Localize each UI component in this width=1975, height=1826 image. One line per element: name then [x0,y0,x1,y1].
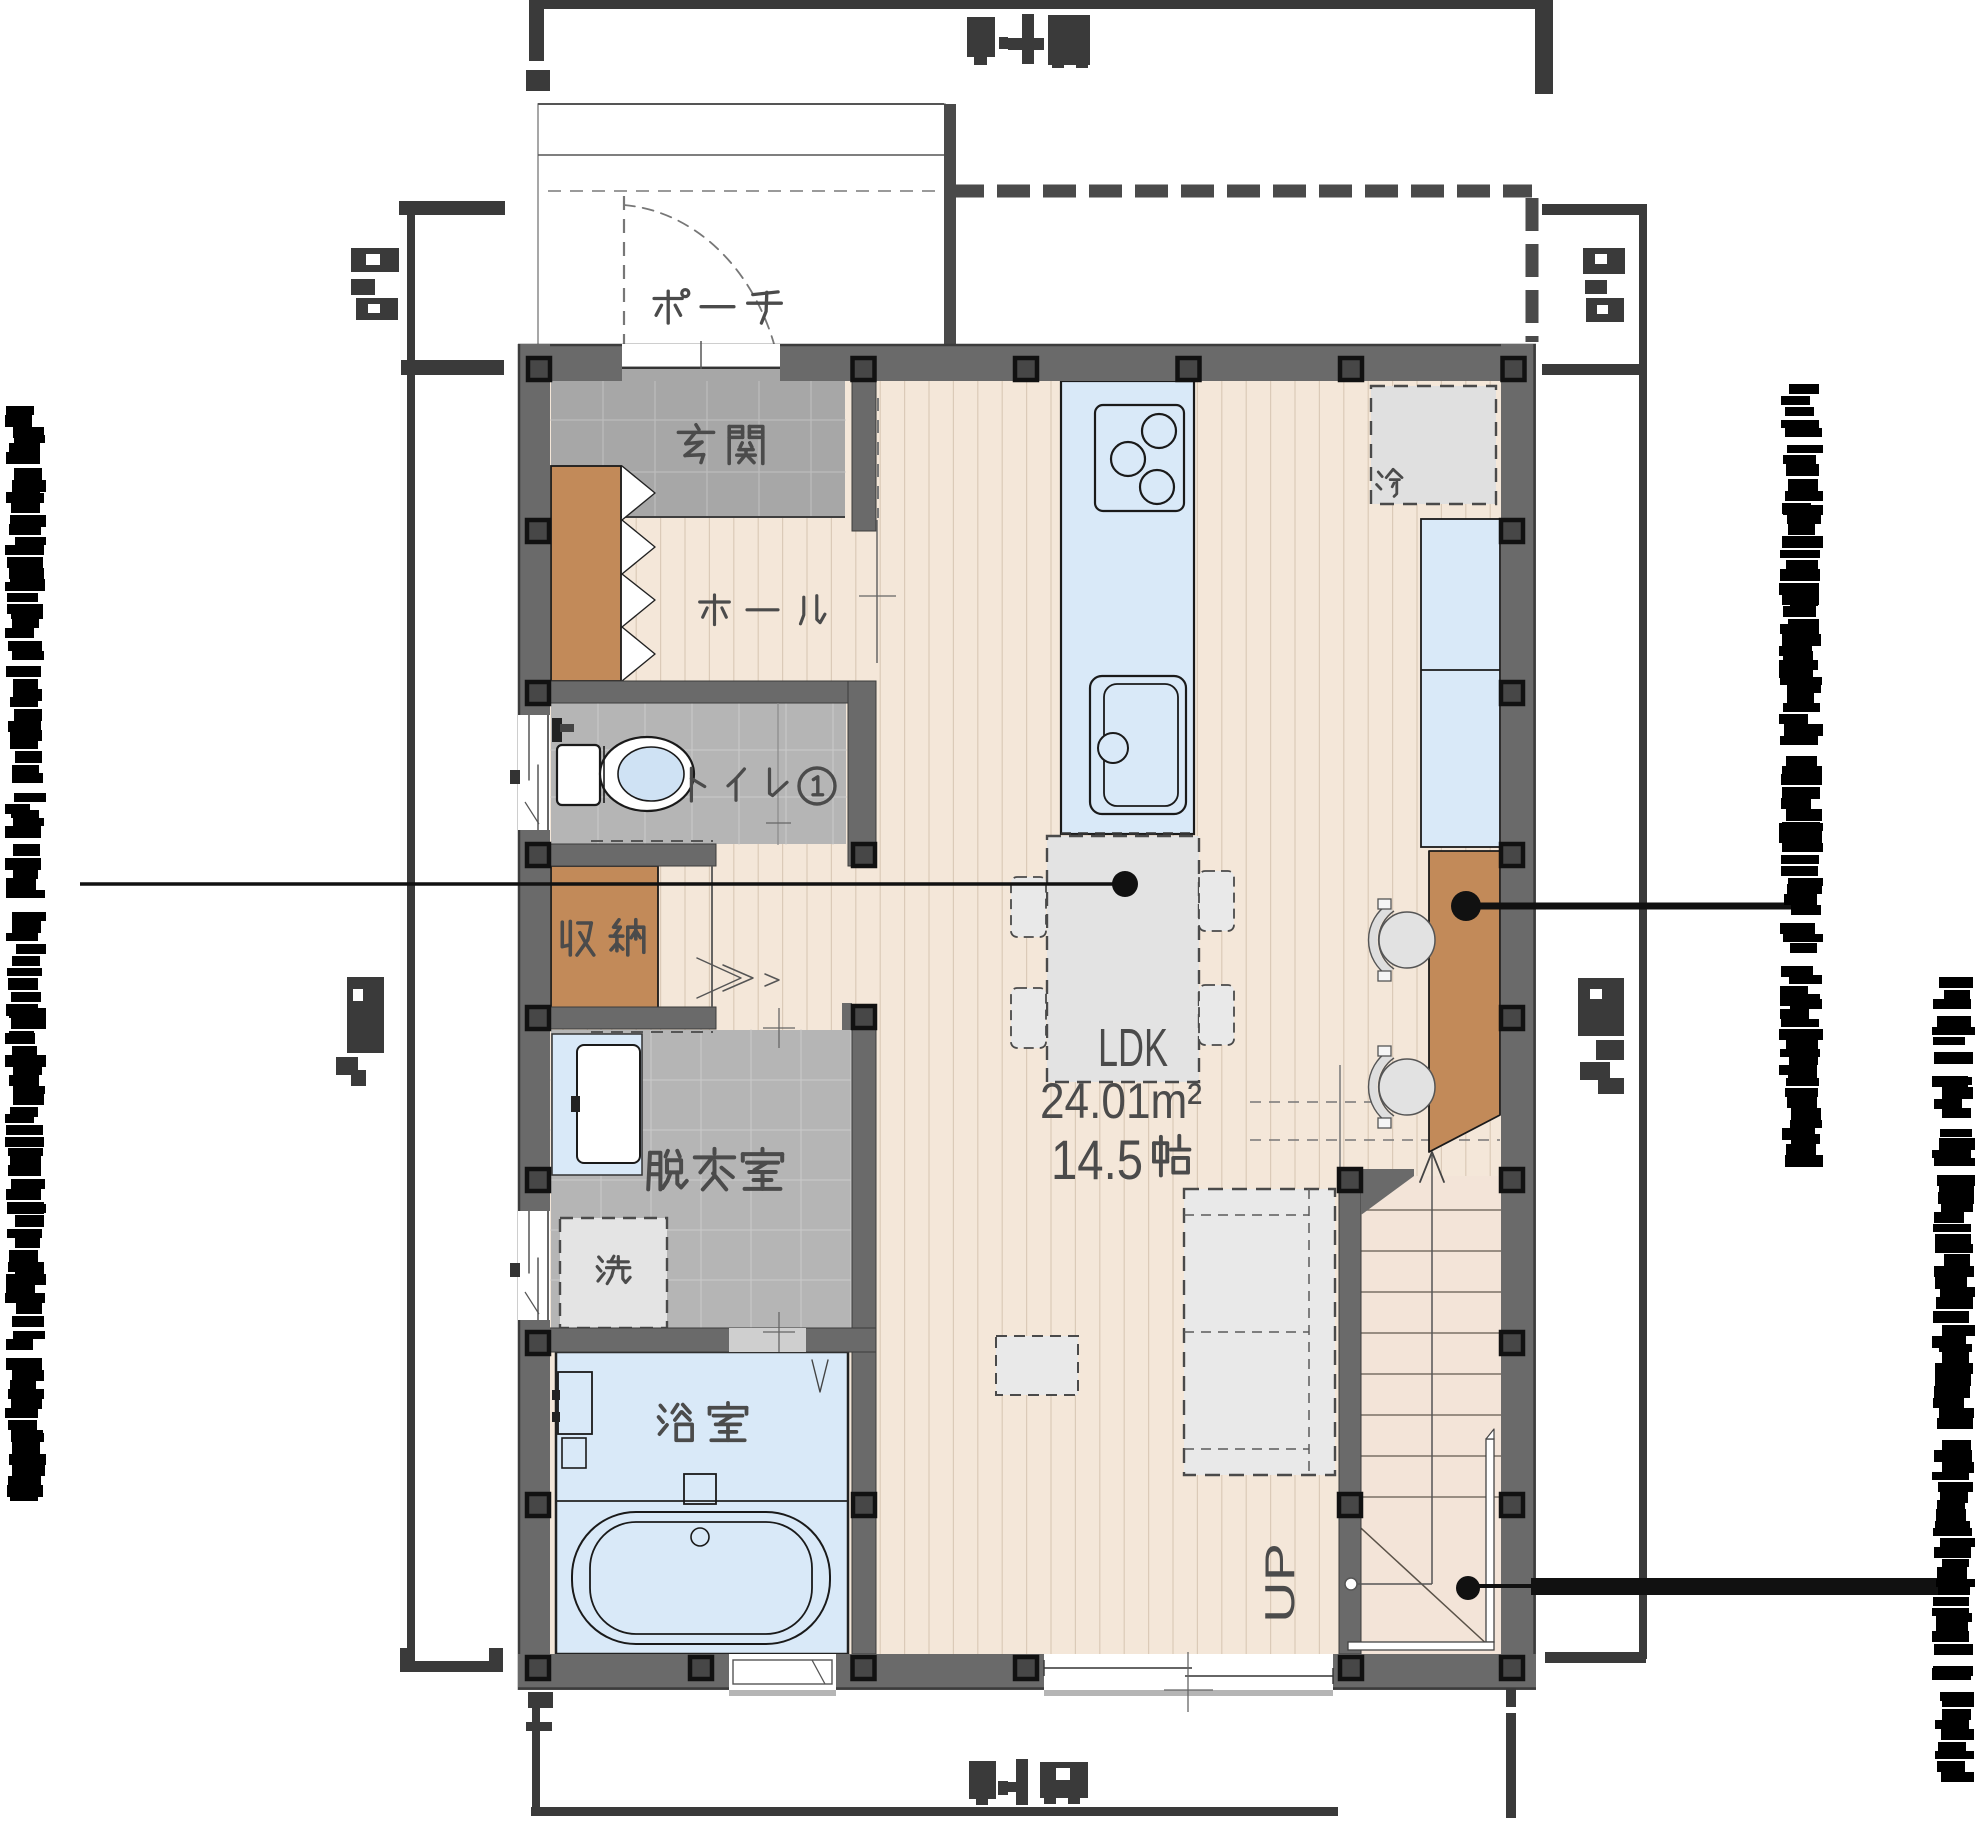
svg-text:UP: UP [1256,1543,1303,1623]
svg-text:14.5: 14.5 [1051,1128,1143,1191]
svg-text:24.01m²: 24.01m² [1040,1073,1202,1129]
svg-text:LDK: LDK [1098,1018,1168,1078]
